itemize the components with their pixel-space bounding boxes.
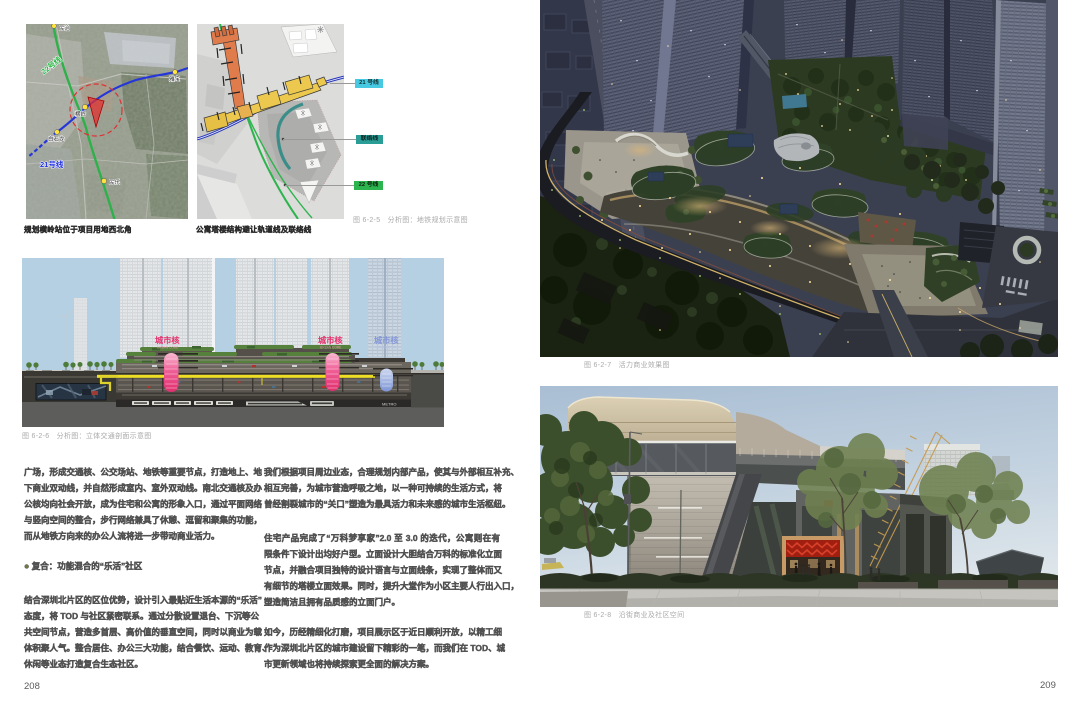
svg-text:21号线: 21号线: [40, 159, 64, 169]
svg-text:民治: 民治: [59, 24, 71, 32]
svg-text:URBAN CORE: URBAN CORE: [320, 346, 341, 350]
svg-text:METRO: METRO: [382, 402, 396, 407]
svg-text:雅宝: 雅宝: [169, 75, 181, 83]
svg-text:URBAN CORE: URBAN CORE: [157, 346, 178, 350]
svg-text:横岭: 横岭: [75, 110, 87, 118]
svg-text:白石龙: 白石龙: [48, 135, 65, 143]
svg-text:城市核: 城市核: [318, 335, 343, 345]
svg-text:城市核: 城市核: [374, 335, 399, 345]
svg-text:URBAN CORE: URBAN CORE: [376, 346, 397, 350]
svg-text:民乐: 民乐: [109, 179, 121, 186]
svg-text:城市核: 城市核: [155, 335, 180, 345]
